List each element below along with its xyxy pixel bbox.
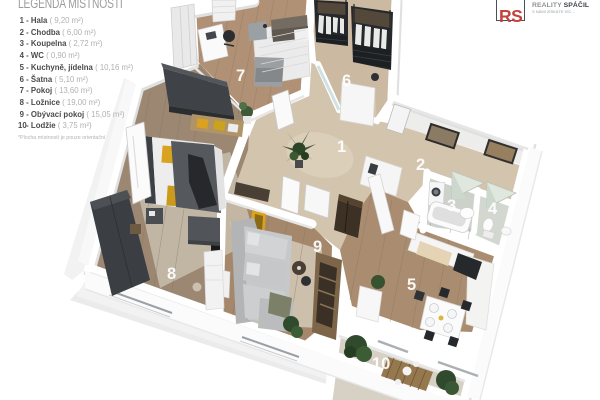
svg-text:5: 5 bbox=[407, 276, 416, 294]
svg-text:3: 3 bbox=[447, 197, 456, 215]
svg-text:1: 1 bbox=[337, 138, 346, 156]
svg-text:4: 4 bbox=[488, 200, 498, 218]
svg-text:10: 10 bbox=[372, 355, 390, 373]
svg-text:6: 6 bbox=[342, 72, 351, 90]
svg-text:9: 9 bbox=[313, 238, 322, 256]
svg-text:2: 2 bbox=[416, 156, 425, 174]
svg-text:8: 8 bbox=[167, 265, 176, 283]
svg-text:7: 7 bbox=[236, 67, 245, 85]
